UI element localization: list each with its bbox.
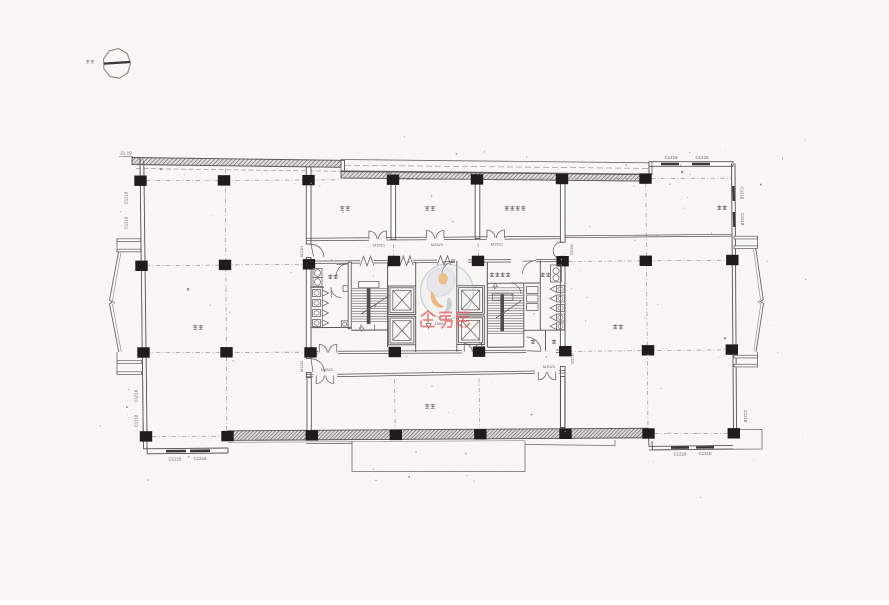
svg-text:C1218: C1218 <box>134 389 139 402</box>
svg-text:M1521: M1521 <box>491 242 504 247</box>
svg-text:9: 9 <box>511 293 513 297</box>
svg-text:C1218: C1218 <box>743 410 748 423</box>
svg-text:M1521: M1521 <box>373 243 386 248</box>
svg-text:1: 1 <box>491 293 493 297</box>
svg-text:C1218: C1218 <box>740 187 745 200</box>
svg-text:1900: 1900 <box>435 321 444 326</box>
svg-text:C1218: C1218 <box>194 456 207 461</box>
svg-text:C1218: C1218 <box>696 155 709 160</box>
svg-text:M1521: M1521 <box>300 360 304 372</box>
svg-text:M1521: M1521 <box>321 367 334 372</box>
svg-text:C1218: C1218 <box>674 452 687 457</box>
svg-text:C1218: C1218 <box>169 457 182 462</box>
svg-text:C1218: C1218 <box>124 216 129 229</box>
svg-text:C1218: C1218 <box>124 191 129 204</box>
svg-text:C1218: C1218 <box>740 213 745 226</box>
svg-text:M1521: M1521 <box>431 242 444 247</box>
svg-text:M1521: M1521 <box>543 364 556 369</box>
svg-text:M1021: M1021 <box>300 245 304 257</box>
svg-text:C1218: C1218 <box>699 451 712 456</box>
svg-text:C1218: C1218 <box>665 155 678 160</box>
svg-text:C1218: C1218 <box>134 414 139 427</box>
svg-text:M1021: M1021 <box>570 244 574 256</box>
